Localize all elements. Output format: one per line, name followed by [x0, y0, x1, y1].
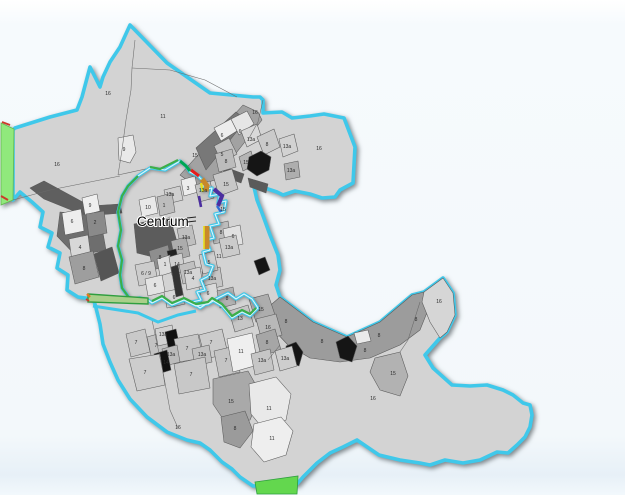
parcel-label: 10 — [145, 205, 151, 211]
parcel-label: 6 — [221, 133, 224, 139]
parcel-label: 4 — [79, 245, 82, 251]
parcel-label: 7 — [225, 358, 228, 364]
parcel-label: 13a — [198, 352, 207, 358]
parcel-label: 13a — [159, 332, 168, 338]
parcel-label: 8 — [226, 296, 229, 302]
parcel-label: 8 — [266, 142, 269, 148]
parcel-label: 1 — [164, 262, 167, 268]
parcel-label: 16 — [436, 299, 442, 305]
parcel-label: 7 — [155, 343, 158, 349]
centrum-label: Centrum — [137, 214, 189, 229]
parcel-label: 8 — [266, 340, 269, 346]
parcel-label: 13a — [208, 276, 217, 282]
parcel-label: 6 — [173, 295, 176, 301]
parcel-label: 8 — [159, 255, 162, 261]
parcel-label: 15 — [228, 399, 234, 405]
parcel-label: 11 — [160, 114, 165, 120]
parcel-label: 6 — [71, 219, 74, 225]
parcel-label: 8 — [220, 230, 223, 236]
parcel-label: 13a — [225, 245, 234, 251]
parcel-label: 6 — [154, 283, 157, 289]
parcel-label: 16 — [265, 325, 271, 331]
parcel-label: 1 — [163, 203, 166, 209]
parcel-label: 13a — [287, 168, 296, 174]
parcel-label: 14 — [163, 360, 169, 366]
parcel-label: 15 — [258, 307, 264, 313]
parcel-label: 16 — [252, 110, 258, 116]
parcel[interactable] — [86, 211, 107, 237]
parcel-label: 11 — [216, 254, 221, 260]
parcel-label: 7 — [186, 346, 189, 352]
parcel-label: 7 — [144, 370, 147, 376]
parcel-label: 15 — [192, 153, 198, 159]
parcel-label: 6 — [207, 291, 210, 297]
parcel-label: 15 — [390, 371, 396, 377]
parcel-label: 16 — [316, 146, 322, 152]
parcel-label: 8 — [225, 159, 228, 165]
parcel-label: 7 — [190, 372, 193, 378]
parcel-label: 7 — [210, 340, 213, 346]
left-green-strip — [1, 123, 14, 205]
parcel-label: 16 — [105, 91, 111, 97]
parcel-label: 13a — [281, 356, 290, 362]
parcel-label: 11 — [269, 436, 274, 442]
parcel-label: 13a — [167, 352, 176, 358]
parcel-label: 13a — [182, 235, 191, 241]
parcel-label: 7 — [135, 340, 138, 346]
parcel-label: 8 — [83, 266, 86, 272]
parcel-label: 13a — [247, 137, 256, 143]
parcel-label: 15 — [220, 207, 226, 213]
parcel-label: 8 — [415, 317, 418, 323]
parcel-label: 9 — [123, 147, 126, 153]
zoning-map[interactable]: 1611169156613a581513a1613a81513a313a1692… — [0, 0, 625, 495]
parcel-label: 2 — [94, 220, 97, 226]
parcel-label: 13a — [166, 192, 175, 198]
parcel-label: 8 — [234, 426, 237, 432]
parcel-label: 6 / 9 — [141, 271, 151, 277]
zoning-map-viewport[interactable]: 1611169156613a581513a1613a81513a313a1692… — [0, 0, 625, 495]
parcel-label: 13a — [258, 358, 267, 364]
parcel-label: 6 — [232, 234, 235, 240]
parcel-label: 15 — [177, 246, 183, 252]
parcel-label: 8 — [285, 319, 288, 325]
parcel-label: 8 — [378, 333, 381, 339]
parcel-label: 15 — [223, 182, 229, 188]
parcel-label: 4 — [192, 276, 195, 282]
parcel-label: 16 — [370, 396, 376, 402]
parcel-label: 3 — [187, 186, 190, 192]
parcel-label: 14 — [174, 262, 180, 268]
parcel-label: 5 — [221, 152, 224, 158]
parcel-label: 8 — [364, 348, 367, 354]
parcel-label: 13 — [237, 316, 243, 322]
parcel-label: 15 — [243, 160, 249, 166]
parcel-label: 5 — [208, 260, 211, 266]
parcel-label: 13a — [199, 188, 208, 194]
parcel-label: 11 — [266, 406, 271, 412]
parcel-label: 6 — [239, 129, 242, 135]
parcel-label: 11 — [238, 349, 243, 355]
parcel-label: 9 — [89, 203, 92, 209]
parcel-label: 13a — [283, 144, 292, 150]
parcel-label: 8 — [321, 339, 324, 345]
parcel-label: 16 — [54, 162, 60, 168]
parcel-label: 16 — [175, 425, 181, 431]
